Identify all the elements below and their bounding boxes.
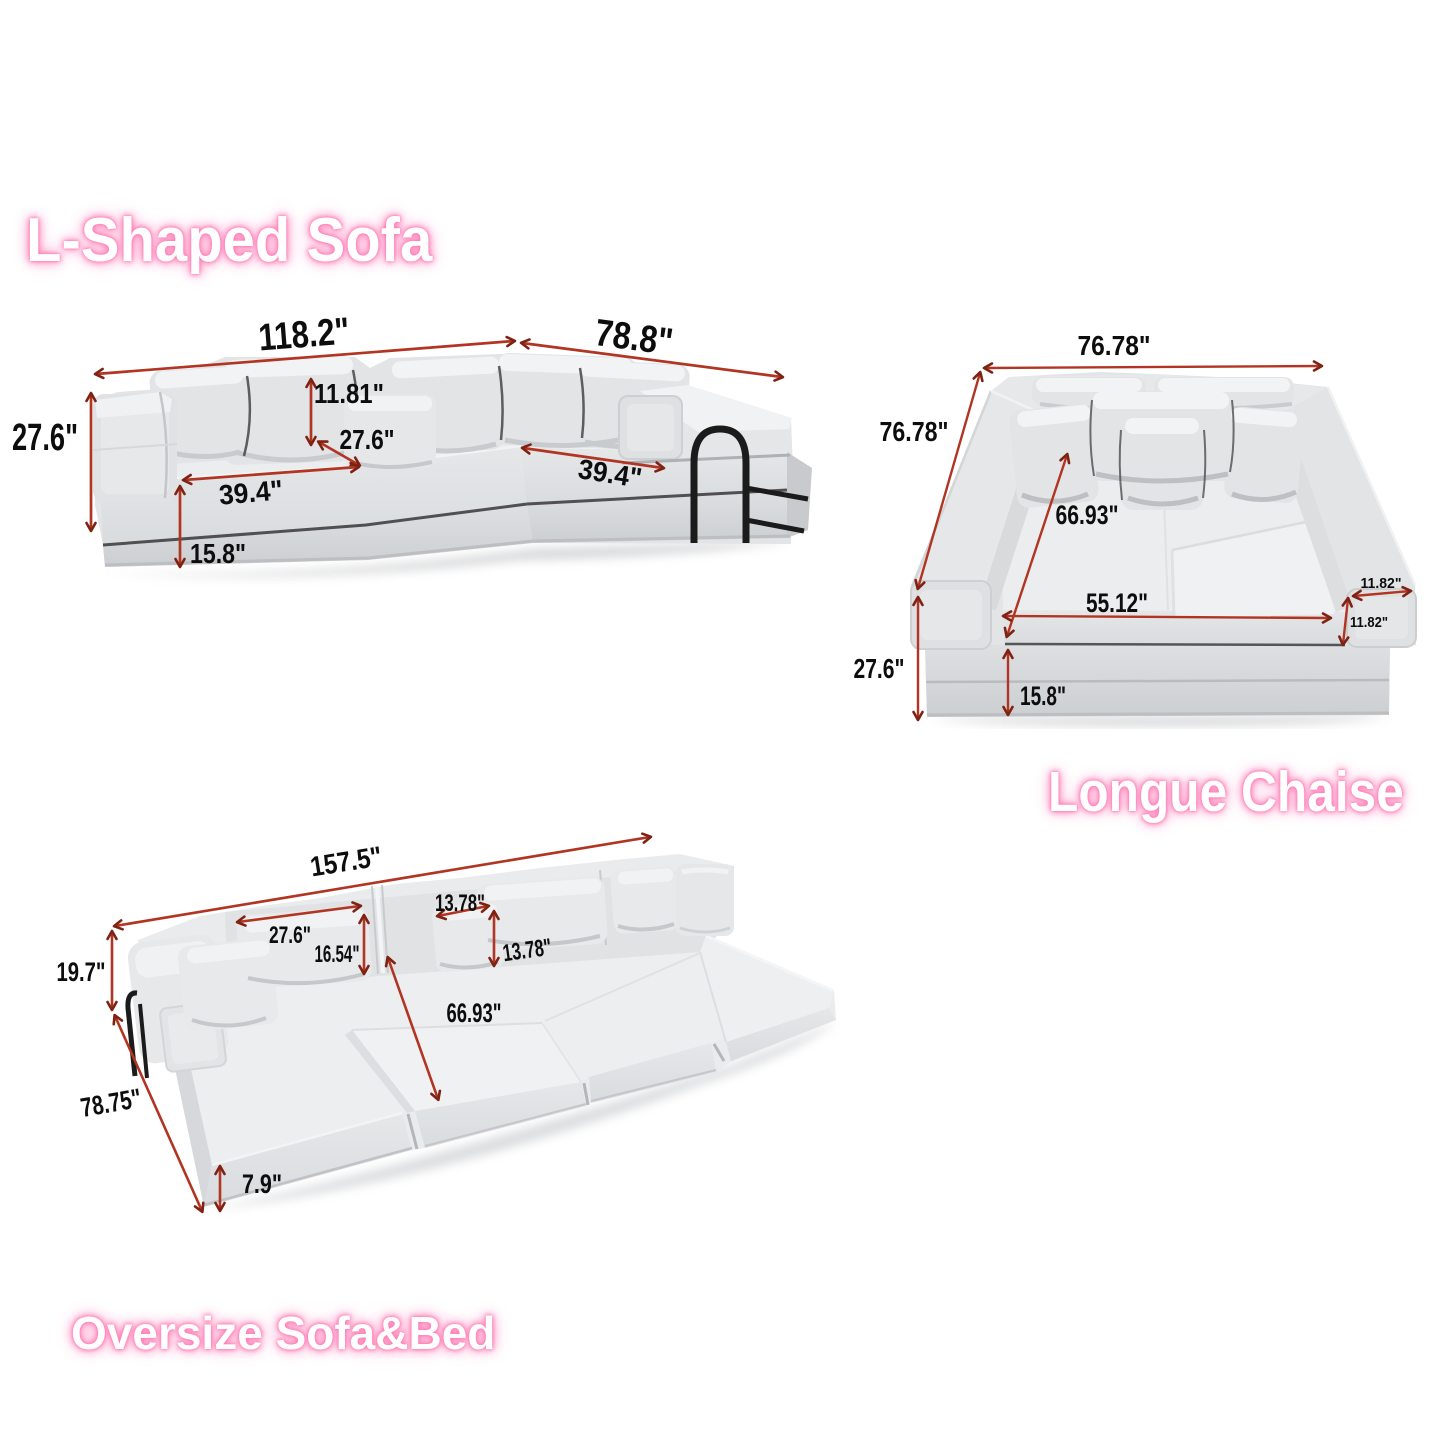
svg-text:55.12": 55.12" xyxy=(1086,588,1148,618)
svg-text:13.78": 13.78" xyxy=(435,890,485,917)
svg-text:15.8": 15.8" xyxy=(1020,681,1066,711)
svg-text:11.82": 11.82" xyxy=(1361,575,1402,592)
svg-text:76.78": 76.78" xyxy=(1078,330,1151,361)
svg-text:66.93": 66.93" xyxy=(447,998,502,1028)
svg-text:16.54": 16.54" xyxy=(315,941,360,968)
svg-text:118.2": 118.2" xyxy=(257,310,351,359)
svg-text:27.6": 27.6" xyxy=(269,922,311,949)
svg-text:78.8": 78.8" xyxy=(592,312,675,364)
svg-text:19.7": 19.7" xyxy=(57,957,106,987)
svg-text:78.75": 78.75" xyxy=(78,1083,143,1123)
svg-text:76.78": 76.78" xyxy=(880,416,949,447)
svg-text:39.4": 39.4" xyxy=(218,474,284,510)
svg-text:157.5": 157.5" xyxy=(308,841,384,883)
svg-text:66.93": 66.93" xyxy=(1056,500,1119,530)
svg-text:27.6": 27.6" xyxy=(340,424,395,455)
svg-text:27.6": 27.6" xyxy=(854,653,905,684)
svg-text:15.8": 15.8" xyxy=(190,538,246,569)
svg-text:27.6": 27.6" xyxy=(12,417,78,459)
svg-text:11.82": 11.82" xyxy=(1350,614,1388,631)
svg-text:7.9": 7.9" xyxy=(242,1169,282,1199)
svg-text:11.81": 11.81" xyxy=(314,378,384,409)
